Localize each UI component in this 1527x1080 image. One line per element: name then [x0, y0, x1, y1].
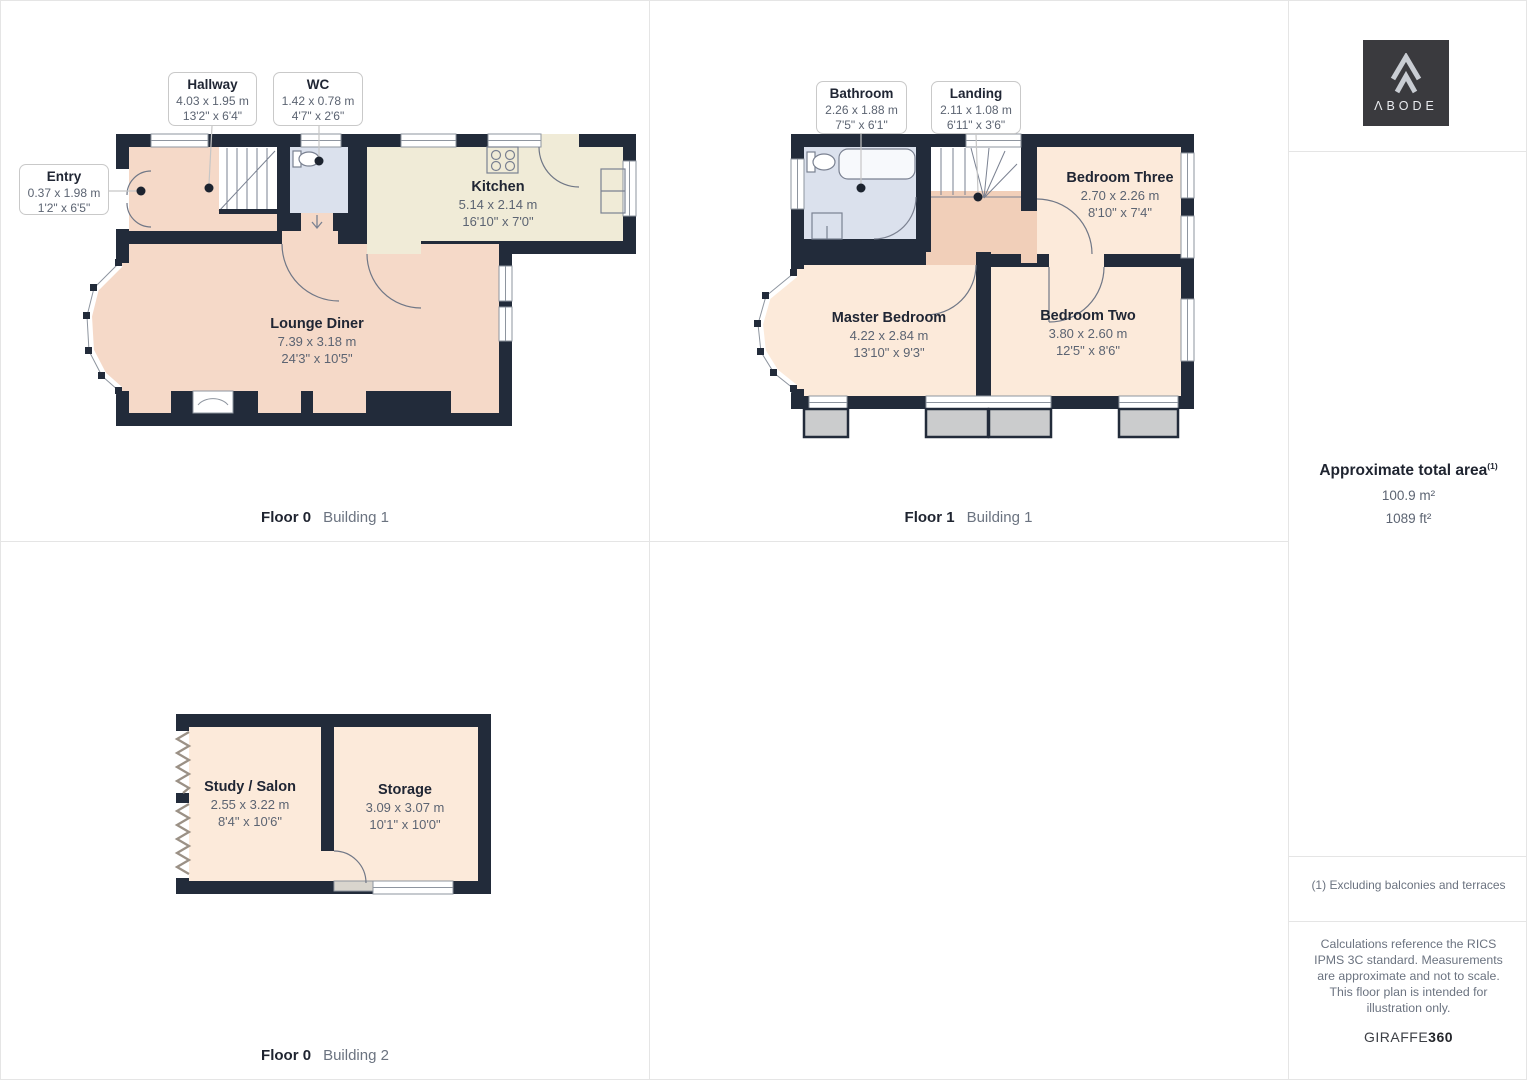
panel-divider [1289, 921, 1527, 922]
callout-dim-m: 4.03 x 1.95 m [172, 94, 253, 110]
kitchen-door-gap [539, 134, 579, 147]
giraffe360-brand: GIRAFFE [1364, 1029, 1428, 1045]
stairs-treads [219, 148, 275, 211]
plan-cell-floor0-building2: Study / Salon 2.55 x 3.22 m 8'4" x 10'6"… [1, 541, 649, 1077]
callout-bathroom: Bathroom 2.26 x 1.88 m 7'5" x 6'1" [816, 81, 907, 134]
room-dim-m: 3.80 x 2.60 m [998, 326, 1178, 343]
caption-floor: Floor 0 [261, 1047, 311, 1064]
room-name: Study / Salon [160, 778, 340, 797]
kitchen-lounge-gap [367, 241, 421, 254]
hall-lounge-gap [282, 231, 338, 244]
room-name: Bedroom Three [1030, 169, 1210, 188]
bed2-door-gap [1049, 254, 1104, 267]
room-dim-ft: 16'10" x 7'0" [418, 214, 578, 231]
room-label-master-bedroom: Master Bedroom 4.22 x 2.84 m 13'10" x 9'… [799, 309, 979, 362]
callout-title: Bathroom [820, 86, 903, 103]
room-dim-m: 5.14 x 2.14 m [418, 197, 578, 214]
caption-building: Building 1 [967, 509, 1033, 526]
room-dim-m: 2.70 x 2.26 m [1030, 188, 1210, 205]
room-dim-m: 3.09 x 3.07 m [315, 800, 495, 817]
giraffe360-brand-bold: 360 [1428, 1029, 1453, 1045]
room-name: Bedroom Two [998, 307, 1178, 326]
callout-dim-ft: 1'2" x 6'5" [23, 201, 105, 217]
bathtub-icon [839, 149, 915, 179]
door-gap [321, 851, 334, 881]
room-label-bedroom-two: Bedroom Two 3.80 x 2.60 m 12'5" x 8'6" [998, 307, 1178, 360]
room-dim-m: 4.22 x 2.84 m [799, 328, 979, 345]
caption-building: Building 2 [323, 1047, 389, 1064]
caption-floor: Floor 1 [905, 509, 955, 526]
room-label-bedroom-three: Bedroom Three 2.70 x 2.26 m 8'10" x 7'4" [1030, 169, 1210, 222]
total-area-title: Approximate total area(1) [1289, 461, 1527, 480]
callout-dim-ft: 13'2" x 6'4" [172, 109, 253, 125]
stairs [931, 147, 1021, 196]
room-dim-m: 7.39 x 3.18 m [237, 334, 397, 351]
total-area-ft2: 1089 ft² [1289, 511, 1527, 526]
room-name: Lounge Diner [237, 315, 397, 334]
callout-entry: Entry 0.37 x 1.98 m 1'2" x 6'5" [19, 164, 109, 215]
callout-dim-m: 0.37 x 1.98 m [23, 186, 105, 202]
panel-divider [1289, 151, 1527, 152]
callout-hallway: Hallway 4.03 x 1.95 m 13'2" x 6'4" [168, 72, 257, 126]
callout-title: Entry [23, 169, 105, 186]
total-area-superscript: (1) [1487, 461, 1497, 471]
callout-title: Hallway [172, 77, 253, 94]
bay-window [754, 269, 804, 392]
giraffe360-logo: GIRAFFE360 [1289, 1029, 1527, 1045]
callout-dim-m: 2.26 x 1.88 m [820, 103, 903, 119]
caption-floor: Floor 0 [261, 509, 311, 526]
callout-dim-ft: 7'5" x 6'1" [820, 118, 903, 134]
callout-wc: WC 1.42 x 0.78 m 4'7" x 2'6" [273, 72, 363, 126]
fireplace-icon [193, 391, 233, 413]
room-label-kitchen: Kitchen 5.14 x 2.14 m 16'10" x 7'0" [418, 178, 578, 231]
room-dim-ft: 8'10" x 7'4" [1030, 205, 1210, 222]
callout-title: Landing [935, 86, 1017, 103]
floorplan-page: Entry 0.37 x 1.98 m 1'2" x 6'5" Hallway … [0, 0, 1527, 1080]
total-area-block: Approximate total area(1) 100.9 m² 1089 … [1289, 461, 1527, 526]
room-dim-ft: 24'3" x 10'5" [237, 351, 397, 368]
caption-floor0-building2: Floor 0 Building 2 [1, 1047, 649, 1064]
room-name: Master Bedroom [799, 309, 979, 328]
info-panel: ΛBODE Approximate total area(1) 100.9 m²… [1288, 1, 1527, 1080]
plan-cell-floor1-building1: Bathroom 2.26 x 1.88 m 7'5" x 6'1" Landi… [649, 1, 1288, 541]
abode-logo: ΛBODE [1363, 40, 1449, 126]
panel-divider [1289, 856, 1527, 857]
caption-floor0-building1: Floor 0 Building 1 [1, 509, 649, 526]
room-name: Kitchen [418, 178, 578, 197]
callout-dim-ft: 6'11" x 3'6" [935, 118, 1017, 134]
total-area-title-text: Approximate total area [1319, 462, 1487, 479]
callout-landing: Landing 2.11 x 1.08 m 6'11" x 3'6" [931, 81, 1021, 134]
total-area-m2: 100.9 m² [1289, 488, 1527, 503]
room-label-lounge-diner: Lounge Diner 7.39 x 3.18 m 24'3" x 10'5" [237, 315, 397, 368]
room-label-storage: Storage 3.09 x 3.07 m 10'1" x 10'0" [315, 781, 495, 834]
footnote-text: (1) Excluding balconies and terraces [1299, 878, 1518, 892]
room-dim-ft: 13'10" x 9'3" [799, 345, 979, 362]
room-name: Storage [315, 781, 495, 800]
room-dim-m: 2.55 x 3.22 m [160, 797, 340, 814]
stairs-base-wall [219, 209, 277, 214]
room-dim-ft: 8'4" x 10'6" [160, 814, 340, 831]
abode-logo-icon [1383, 53, 1429, 95]
disclaimer-text: Calculations reference the RICS IPMS 3C … [1309, 937, 1508, 1017]
window [373, 881, 453, 894]
roof-dormer [804, 409, 1178, 437]
callout-title: WC [277, 77, 359, 94]
callout-dim-m: 1.42 x 0.78 m [277, 94, 359, 110]
callout-dim-m: 2.11 x 1.08 m [935, 103, 1017, 119]
caption-floor1-building1: Floor 1 Building 1 [649, 509, 1288, 526]
abode-logo-text: ΛBODE [1374, 99, 1438, 113]
room-label-study-salon: Study / Salon 2.55 x 3.22 m 8'4" x 10'6" [160, 778, 340, 831]
bay-window [83, 259, 129, 394]
caption-building: Building 1 [323, 509, 389, 526]
grid-divider-horizontal [1, 541, 1288, 542]
master-door-gap [926, 252, 976, 265]
room-dim-ft: 12'5" x 8'6" [998, 343, 1178, 360]
plan-cell-floor0-building1: Entry 0.37 x 1.98 m 1'2" x 6'5" Hallway … [1, 1, 649, 541]
room-dim-ft: 10'1" x 10'0" [315, 817, 495, 834]
callout-dim-ft: 4'7" x 2'6" [277, 109, 359, 125]
